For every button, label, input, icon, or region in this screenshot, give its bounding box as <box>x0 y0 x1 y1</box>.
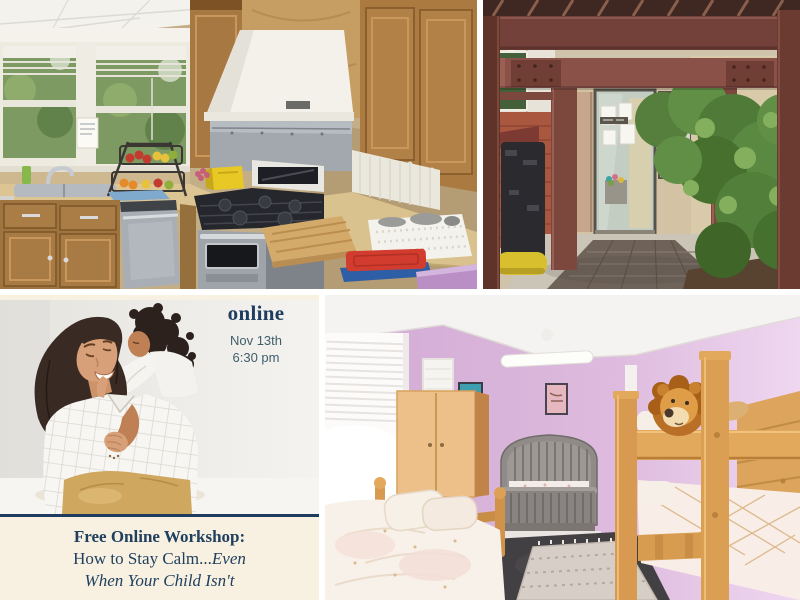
collage-container: online Nov 13th 6:30 pm Free Online Work… <box>0 0 800 600</box>
wardrobe <box>397 391 489 497</box>
workshop-subtitle-line2: When Your Child Isn't <box>0 570 319 592</box>
right-post <box>777 10 800 289</box>
online-label: online <box>196 301 316 326</box>
workshop-subtitle-line1: How to Stay Calm...Even <box>0 548 319 570</box>
window-sign <box>77 118 98 148</box>
event-date: Nov 13th <box>196 332 316 349</box>
workshop-caption: Free Online Workshop: How to Stay Calm..… <box>0 517 319 592</box>
pillow <box>422 496 478 532</box>
bedroom-photo <box>325 295 800 600</box>
workshop-card: online Nov 13th 6:30 pm Free Online Work… <box>0 295 319 600</box>
smoke-detector <box>541 329 553 341</box>
grill <box>501 142 545 260</box>
kitchen-photo <box>0 0 477 289</box>
yellow-bin <box>205 166 244 190</box>
crib <box>501 435 597 531</box>
dishwasher <box>120 200 180 289</box>
event-mode-block: online Nov 13th 6:30 pm <box>196 301 316 366</box>
event-time: 6:30 pm <box>196 349 316 366</box>
soap-bottle <box>22 166 31 184</box>
workshop-title: Free Online Workshop: <box>0 526 319 548</box>
pergola-beams <box>483 0 800 100</box>
entrance-photo <box>483 0 800 289</box>
kitchen-window <box>0 28 190 172</box>
